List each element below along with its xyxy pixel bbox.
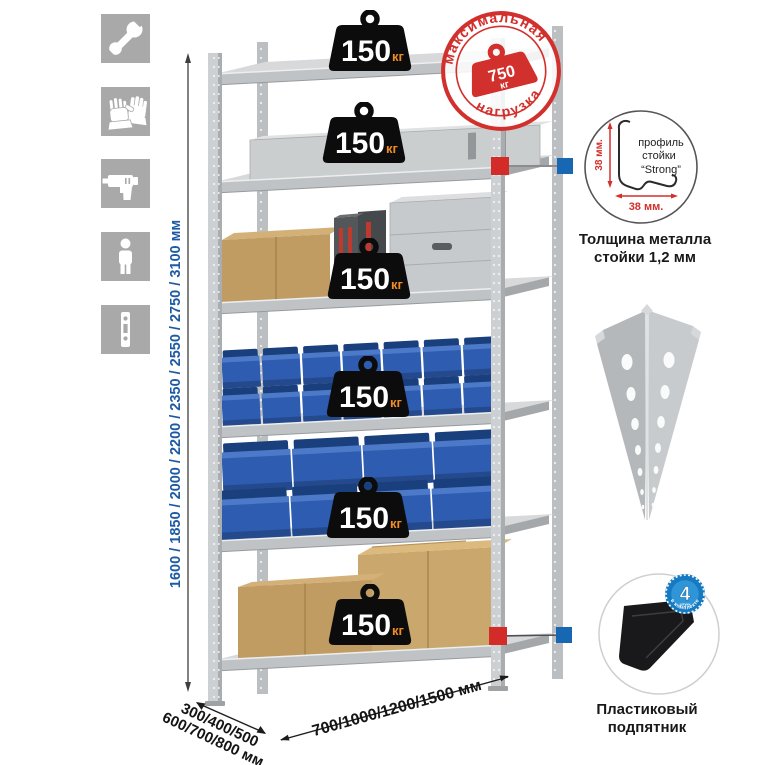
quantity-badge: 4 штуки в комплекте [665, 574, 705, 614]
svg-text:150: 150 [339, 502, 389, 535]
svg-text:150: 150 [341, 609, 391, 642]
gloves-icon [101, 87, 150, 136]
svg-text:150: 150 [335, 127, 385, 160]
foot-plate-left [205, 701, 225, 706]
post-profile-detail: 38 мм. 38 мм. профиль стойки “Strong” [582, 108, 700, 231]
shelf-load-badge: 150 кг [322, 10, 418, 74]
foot-caption: Пластиковый подпятник [572, 701, 722, 736]
weight-handle [363, 12, 377, 26]
svg-text:38 мм.: 38 мм. [594, 139, 605, 171]
product-infographic: 1600 / 1850 / 2000 / 2200 / 2350 / 2550 … [0, 0, 765, 765]
svg-text:кг: кг [390, 516, 403, 531]
svg-text:150: 150 [339, 381, 389, 414]
svg-text:кг: кг [392, 49, 405, 64]
person-icon [101, 232, 150, 281]
svg-text:кг: кг [390, 395, 403, 410]
svg-text:кг: кг [392, 623, 405, 638]
svg-text:150: 150 [341, 35, 391, 68]
svg-text:кг: кг [391, 277, 404, 292]
shelf-load-badge: 150 кг [320, 477, 416, 541]
shelf-load-badge: 150 кг [320, 356, 416, 420]
post-profile-icon [101, 305, 150, 354]
wrench-icon [101, 14, 150, 63]
svg-text:кг: кг [386, 141, 399, 156]
height-options-label: 1600 / 1850 / 2000 / 2200 / 2350 / 2550 … [168, 194, 186, 614]
connector-blue-marker [557, 158, 573, 174]
svg-text:150: 150 [340, 263, 390, 296]
connector-blue-marker [556, 627, 572, 643]
svg-text:“Strong”: “Strong” [641, 164, 681, 176]
connector-red-marker [489, 627, 507, 645]
shelf-load-badge: 150 кг [322, 584, 418, 648]
connector-red-marker [491, 157, 509, 175]
plastic-foot-detail: 4 штуки в комплекте [584, 566, 740, 711]
corner-post-image [593, 302, 708, 535]
svg-text:стойки: стойки [642, 150, 676, 162]
shelf-load-badge: 150 кг [321, 238, 417, 302]
profile-caption: Толщина металла стойки 1,2 мм [570, 231, 720, 266]
svg-text:профиль: профиль [638, 137, 684, 149]
svg-text:38 мм.: 38 мм. [629, 201, 664, 213]
shelf-load-badge: 150 кг [316, 102, 412, 166]
drill-icon [101, 159, 150, 208]
